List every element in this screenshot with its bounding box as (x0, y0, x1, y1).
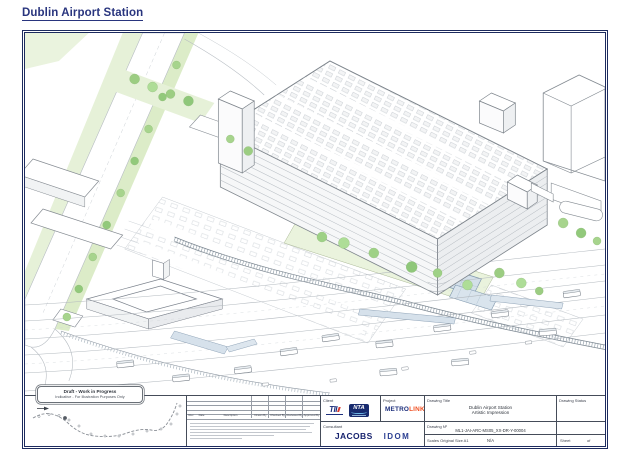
jacobs-logo: JACOBS (335, 431, 373, 441)
consultant-cell: Consultant JACOBS IDOM (321, 422, 424, 446)
notes-text-line (190, 426, 310, 427)
revision-row-line (187, 405, 320, 406)
title-number-scale-cell: Drawing Title Dublin Airport Station Art… (424, 396, 556, 446)
artists-impression-drawing (25, 33, 605, 398)
metrolink-route-line (33, 403, 177, 437)
metrolink-link-text: LINK (409, 406, 425, 413)
revision-table: Rev Date Description Drawn By Checked By… (186, 396, 320, 446)
drawing-title-label: Drawing Title (427, 398, 450, 403)
draft-status-line2: Indicative - For Illustration Purposes O… (55, 395, 124, 400)
notes-text-line (190, 423, 314, 424)
scale-label: Scales Original Size A1 (427, 438, 469, 443)
tii-logo: TII (326, 406, 343, 416)
notes-text-line (190, 432, 312, 433)
page: Dublin Airport Station (0, 0, 630, 455)
sheet-cell: Sheet of (557, 435, 605, 446)
route-stations (38, 405, 181, 437)
drawing-title-cell: Drawing Title Dublin Airport Station Art… (425, 396, 556, 422)
scale-cell: Scales Original Size A1 N/A (425, 435, 556, 446)
notes-text-line (190, 438, 242, 439)
approved-by-header: Approved By (303, 414, 320, 417)
scale-value: N/A (487, 438, 494, 443)
nta-swoosh (351, 410, 367, 415)
description-col-header: Description (208, 414, 252, 417)
tii-caption-bar (326, 414, 343, 416)
drawing-area (25, 33, 605, 398)
notes-text-line (190, 435, 274, 436)
drawing-title-line2: Artistic Impression (425, 410, 556, 416)
reviewed-by-header: Reviewed By (286, 414, 303, 417)
client-project-consultant-cell: Client TII NTA (320, 396, 424, 446)
status-sheet-cell: Drawing Status Sheet of (556, 396, 605, 446)
revision-row-line (187, 410, 320, 411)
nta-caption-bar (352, 415, 366, 416)
sheet-label: Sheet (560, 438, 570, 443)
drawing-sheet-frame: Draft - Work in Progress Indicative - Fo… (22, 30, 608, 449)
client-label: Client (323, 398, 333, 403)
drawing-number-cell: Drawing Nº ML1-JAI-ARC-MS05_XX-DR-Y-0000… (425, 422, 556, 435)
nta-logo: NTA (349, 404, 369, 417)
project-label: Project (383, 398, 395, 403)
drawing-number-value: ML1-JAI-ARC-MS05_XX-DR-Y-00004 (425, 428, 556, 433)
consultant-label: Consultant (323, 424, 342, 429)
date-col-header: Date (195, 414, 208, 417)
drawing-status-cell: Drawing Status (557, 396, 605, 422)
rev-col-header: Rev (187, 414, 195, 417)
checked-by-header: Checked By (269, 414, 286, 417)
key-plan-arrow-head (44, 407, 49, 411)
client-cell: Client TII NTA (321, 396, 381, 421)
idom-logo: IDOM (384, 432, 411, 441)
current-station-marker (63, 416, 67, 420)
key-plan-cell: Key Plan (25, 396, 186, 446)
drawing-sheet-inner: Draft - Work in Progress Indicative - Fo… (24, 32, 606, 447)
draft-status-box: Draft - Work in Progress Indicative - Fo… (37, 386, 143, 403)
revision-header-row: Rev Date Description Drawn By Checked By… (187, 414, 320, 417)
drawing-status-label: Drawing Status (559, 398, 586, 403)
sheet-of-label: of (587, 438, 590, 443)
project-cell: Project METROLINK (381, 396, 424, 421)
drawn-by-header: Drawn By (252, 414, 269, 417)
tii-logo-text: TII (329, 405, 337, 414)
metrolink-logo: METROLINK (385, 406, 425, 413)
revision-row-line (187, 401, 320, 402)
metrolink-metro-text: METRO (385, 406, 409, 413)
status-empty-cell (557, 422, 605, 435)
page-title: Dublin Airport Station (22, 7, 143, 21)
notes-text-line (190, 429, 306, 430)
stair-core (218, 91, 254, 173)
revision-row-line (187, 419, 320, 420)
key-plan-route-map (25, 396, 186, 446)
tii-red-accent (337, 407, 340, 412)
